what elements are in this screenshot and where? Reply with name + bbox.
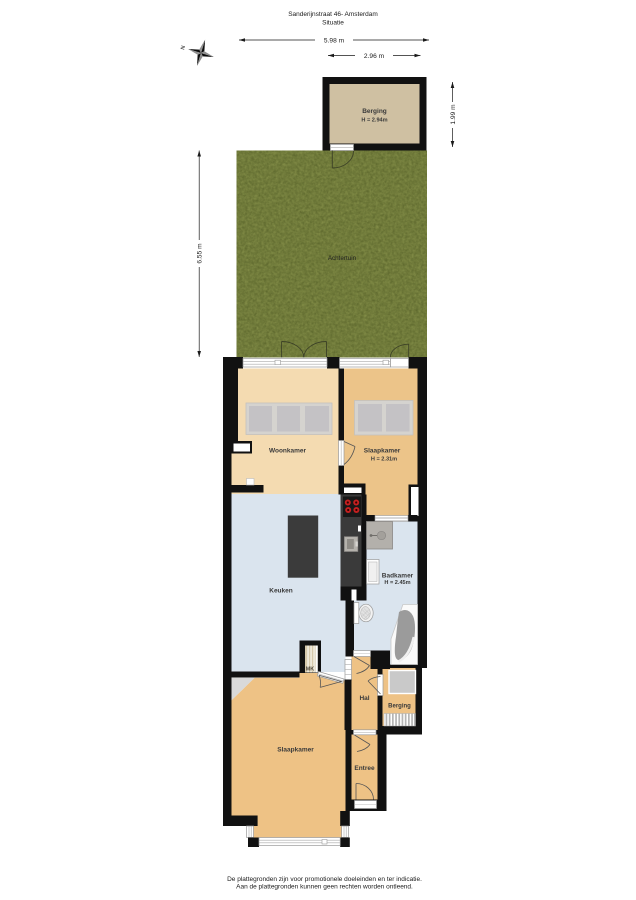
svg-text:Badkamer: Badkamer bbox=[382, 573, 414, 580]
svg-text:MK: MK bbox=[306, 667, 314, 673]
svg-text:6.55 m: 6.55 m bbox=[197, 243, 204, 264]
svg-text:5.98 m: 5.98 m bbox=[324, 37, 345, 44]
svg-text:Berging: Berging bbox=[362, 108, 387, 115]
svg-text:H = 2.45m: H = 2.45m bbox=[384, 580, 410, 586]
svg-text:H = 2.31m: H = 2.31m bbox=[371, 457, 397, 463]
svg-text:Woonkamer: Woonkamer bbox=[269, 448, 307, 455]
svg-text:Entree: Entree bbox=[354, 765, 375, 772]
svg-text:Slaapkamer: Slaapkamer bbox=[277, 747, 314, 754]
svg-text:Sanderijnstraat 46- Amsterdam: Sanderijnstraat 46- Amsterdam bbox=[288, 11, 378, 18]
svg-text:2.96 m: 2.96 m bbox=[364, 53, 385, 60]
svg-text:Berging: Berging bbox=[388, 704, 411, 710]
svg-text:Situatie: Situatie bbox=[322, 20, 344, 27]
svg-text:Aan de plattegronden kunnen ge: Aan de plattegronden kunnen geen rechten… bbox=[236, 884, 413, 891]
svg-text:H = 2.94m: H = 2.94m bbox=[361, 118, 387, 124]
svg-text:1.99 m: 1.99 m bbox=[450, 104, 457, 125]
svg-text:Achtertuin: Achtertuin bbox=[328, 255, 357, 262]
svg-text:De plattegronden zijn voor pro: De plattegronden zijn voor promotionele … bbox=[227, 876, 422, 883]
svg-text:Keuken: Keuken bbox=[269, 588, 293, 595]
svg-text:Hal: Hal bbox=[359, 695, 369, 702]
svg-text:Slaapkamer: Slaapkamer bbox=[364, 448, 401, 455]
